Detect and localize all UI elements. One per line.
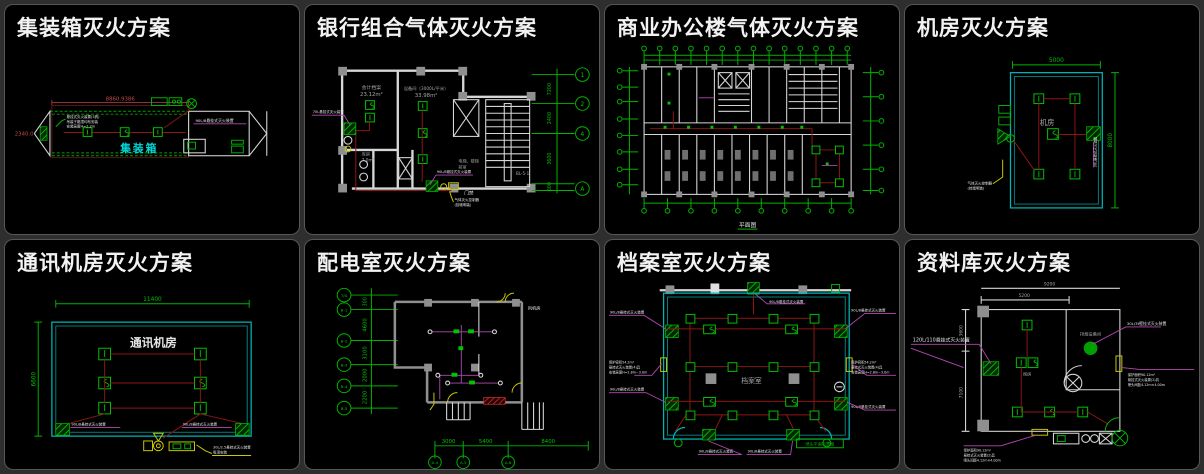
room-labels: 会计档案 23.12m² 设备间（3000L/平米） 33.98m² 库房 7.… xyxy=(360,84,479,196)
dim-right: 8000 xyxy=(1108,133,1114,148)
spec-right-1: 保护容积54.2m³ xyxy=(851,360,877,365)
spec-bottom-3: 喷头间距4.12m×4.00m xyxy=(964,457,1001,462)
dim-top-inner: 5200 xyxy=(1018,293,1030,299)
room-label: 集装箱 xyxy=(119,142,158,155)
svg-text:90L/8悬挂式灭火装置: 90L/8悬挂式灭火装置 xyxy=(195,118,233,123)
nozzle-marks xyxy=(452,329,475,384)
dim-bottom-2: 5400 xyxy=(479,439,493,445)
device-top-right-label: 30L/3t壁挂式灭火装置 xyxy=(1127,321,1167,326)
elevator-shaft xyxy=(453,100,478,137)
dim-top: 8860.9386 xyxy=(106,97,136,103)
leader-bottom-2: 90L/8悬挂式灭火装置 xyxy=(748,449,783,454)
stair-label: BL-5-1 xyxy=(516,171,530,176)
room2-name: 设备间（3000L/平米） xyxy=(404,85,449,92)
note-line-2: (挂墙明装) xyxy=(968,186,985,191)
axis-left-3: B-2 xyxy=(341,338,348,343)
device-label: 30L悬挂式灭火装置 xyxy=(1092,136,1097,167)
dimension-lines: 5000 8000 xyxy=(1012,58,1118,208)
dim-bottom-1: 3000 xyxy=(442,439,456,445)
device-label: 90L/8悬挂式灭火装置 xyxy=(194,118,247,124)
lobby-label-1: 电梯、楼梯 xyxy=(458,158,479,164)
spec-left-2: 悬挂式灭火装置(4)具 xyxy=(609,365,641,370)
page-title: 商业办公楼气体灭火方案 xyxy=(617,12,859,42)
install-note: 悬挂式灭火装置(3具) 吊装于箱顶均布安装 安装高度H=2.2m xyxy=(56,114,100,129)
top-wall xyxy=(660,283,851,295)
note-line-2: 吸顶安装 xyxy=(213,450,228,455)
dimension-lines: 9200 5200 3600 7100 xyxy=(959,281,1120,431)
fan-room-label: 风机房 xyxy=(528,305,541,312)
axis-bubble-3: 4 xyxy=(581,132,585,138)
dim-top: 11400 xyxy=(143,297,162,303)
room-label: 档案室 xyxy=(741,376,762,385)
axis-bubble-4: A xyxy=(580,187,584,193)
building-walls xyxy=(641,64,854,197)
stairs: BL-5-1 xyxy=(486,100,530,187)
spec-right-1: 保护面积90.12m² xyxy=(1128,372,1156,377)
note-line-1: 气体灭火控制器 xyxy=(968,181,993,186)
page-title: 机房灭火方案 xyxy=(917,12,1049,42)
room3-area: 7.0m² xyxy=(362,158,375,164)
leader-bottom-label-1: 气体灭火控制器 xyxy=(454,197,479,202)
control-cabinet xyxy=(184,139,244,153)
note-line-1: 悬挂式灭火装置(3具) xyxy=(67,114,101,119)
spec-left-3: 安装高度H=2.8m~3.0m xyxy=(609,369,647,374)
panel-data-library-plan: 资料库灭火方案 9200 5200 3600 7100 排烟设备间 xyxy=(904,239,1200,470)
device-right-label: 90L/8悬挂式灭火装置 xyxy=(183,422,218,427)
cad-thumbnail-grid: 集装箱灭火方案 8860.9386 2340.0 xyxy=(0,0,1204,474)
nozzle-row-1 xyxy=(686,314,819,323)
dim-left-bottom: 7100 xyxy=(959,387,965,398)
gas-system xyxy=(344,101,458,192)
panel-power-room-plan: 配电室灭火方案 7/A B-1 B-2 B-3 B-4 B-5 300 4600… xyxy=(304,239,600,470)
page-title: 银行组合气体灭火方案 xyxy=(317,12,537,42)
gas-system: 90L/8悬挂式灭火装置 90L/8悬挂式灭火装置 xyxy=(56,348,249,438)
axis-ticks-sides xyxy=(617,68,883,192)
note-line-1: 30L/2.5悬挂式灭火装置 xyxy=(213,445,251,450)
panel-telecom-room-plan: 通讯机房灭火方案 11400 6600 通讯机房 xyxy=(4,239,300,470)
room-label: 机房 xyxy=(1040,118,1055,127)
room3-name: 库房 xyxy=(362,151,371,158)
roof-equipment xyxy=(152,98,197,109)
note-line-3: 安装高度H=2.2m xyxy=(67,124,96,129)
leader-labels: 120L/110悬挂式灭火装置 30L/3t壁挂式灭火装置 保护面积90.12m… xyxy=(911,321,1194,462)
axis-grid-right: 1 2 4 A 7200 2400 3600 600 xyxy=(532,68,590,196)
spec-right-3: 安装高度H=2.8m~3.0m xyxy=(851,369,889,374)
dim-left-1: 300 xyxy=(363,297,369,306)
panel-bank-plan: 银行组合气体灭火方案 BL-5-1 xyxy=(304,4,600,235)
dim-left-top: 3600 xyxy=(959,325,965,336)
axis-left-4: B-3 xyxy=(341,363,348,368)
dim-left: 2340.0 xyxy=(15,131,34,137)
dim-bottom-3: 8400 xyxy=(541,439,555,445)
axis-left-5: B-4 xyxy=(341,384,348,389)
svg-text:平面图: 平面图 xyxy=(739,222,757,229)
room-label: 通讯机房 xyxy=(130,335,177,349)
dim-right-3: 3600 xyxy=(547,153,553,165)
nozzle-row-4 xyxy=(704,397,798,406)
dim-left-4: 2000 xyxy=(363,368,369,382)
lobby-label-2: 前室 xyxy=(458,163,466,169)
walls: 风机房 xyxy=(395,293,543,429)
dim-left: 6600 xyxy=(31,371,37,386)
axis-ticks-bottom xyxy=(642,198,854,213)
room-top-label: 排烟设备间 xyxy=(1080,331,1101,338)
room-small-label: 阀房 xyxy=(1023,370,1032,377)
leader-top: 90L/8悬挂式灭火装置 xyxy=(769,299,804,304)
dim-left-3: 3100 xyxy=(363,346,369,360)
box-caption: 喷头平面布置图 xyxy=(806,440,835,446)
axis-left-6: B-5 xyxy=(341,406,348,411)
dim-top: 5000 xyxy=(1049,58,1064,64)
panel-container-plan: 集装箱灭火方案 8860.9386 2340.0 xyxy=(4,4,300,235)
dim-right-1: 7200 xyxy=(547,83,553,95)
leader-left-label: 70L悬挂式灭火装置 xyxy=(313,109,344,114)
dim-right-4: 600 xyxy=(547,182,553,191)
axis-bottom-2: A-5 xyxy=(460,460,467,465)
leader-left-top: 90L/8悬挂式灭火装置 xyxy=(610,309,645,314)
dim-left-5: 2200 xyxy=(363,390,369,404)
door-label: 门禁 xyxy=(464,189,474,196)
leader-left-bottom: 90L/8悬挂式灭火装置 xyxy=(610,387,645,392)
axis-grid xyxy=(617,46,883,213)
note-line-2: 吊装于箱顶均布安装 xyxy=(67,119,99,124)
axis-bubble-2: 2 xyxy=(581,102,585,108)
leader-mid-label: 90L/8悬挂式灭火装置 xyxy=(437,169,472,174)
axis-bubble-1: 1 xyxy=(581,73,585,79)
office-desks xyxy=(665,150,794,181)
axis-left-1: 7/A xyxy=(341,293,348,298)
device-left-label: 90L/8悬挂式灭火装置 xyxy=(71,422,106,427)
spec-right-3: 喷头间距4.12m×4.00m xyxy=(1128,382,1165,387)
device-left-label: 120L/110悬挂式灭火装置 xyxy=(913,336,970,343)
panel-archive-room-plan: 档案室灭火方案 xyxy=(604,239,900,470)
panel-office-plan: 商业办公楼气体灭火方案 xyxy=(604,4,900,235)
page-title: 集装箱灭火方案 xyxy=(17,12,171,42)
room2-area: 33.98m² xyxy=(415,92,438,99)
gas-system: 30L悬挂式灭火装置 xyxy=(1013,94,1100,179)
dim-top-outer: 9200 xyxy=(1044,281,1056,287)
page-title: 配电室灭火方案 xyxy=(317,247,471,277)
panel-server-room-plan: 机房灭火方案 5000 8000 机房 30 xyxy=(904,4,1200,235)
plan-caption: 平面图 xyxy=(738,222,758,229)
spec-bottom-1: 保护面积90.12m² xyxy=(964,448,992,453)
control-devices: 气体灭火控制器 (挂墙明装) xyxy=(968,105,1015,190)
dim-right-2: 2400 xyxy=(547,112,553,124)
axis-bottom-1: A-4 xyxy=(432,460,439,465)
page-title: 资料库灭火方案 xyxy=(917,247,1071,277)
axis-grid-bottom: 3000 5400 8400 A-4 A-5 A-6 xyxy=(429,439,589,469)
page-title: 档案室灭火方案 xyxy=(617,247,771,277)
leader-right-top: 90L/8悬挂式灭火装置 xyxy=(851,308,886,313)
room1-area: 23.12m² xyxy=(360,91,383,98)
spec-bottom-2: 悬挂式灭火装置(2)具 xyxy=(964,452,996,457)
axis-left-2: B-1 xyxy=(341,308,348,313)
dimension-lines: 11400 6600 xyxy=(31,297,249,436)
spec-left-1: 保护容积54.2m³ xyxy=(609,360,635,365)
dim-left-2: 4600 xyxy=(363,318,369,332)
spec-right-2: 悬挂式灭火装置(2)具 xyxy=(1128,377,1160,382)
page-title: 通讯机房灭火方案 xyxy=(17,247,193,277)
axis-grid-left: 7/A B-1 B-2 B-3 B-4 B-5 300 4600 3100 20… xyxy=(337,288,398,415)
leader-bottom-label-2: (挂墙明装) xyxy=(454,202,471,207)
room1-name: 会计档案 xyxy=(362,84,382,91)
nozzle-grid xyxy=(668,294,846,431)
axis-bottom-3: A-6 xyxy=(505,460,512,465)
